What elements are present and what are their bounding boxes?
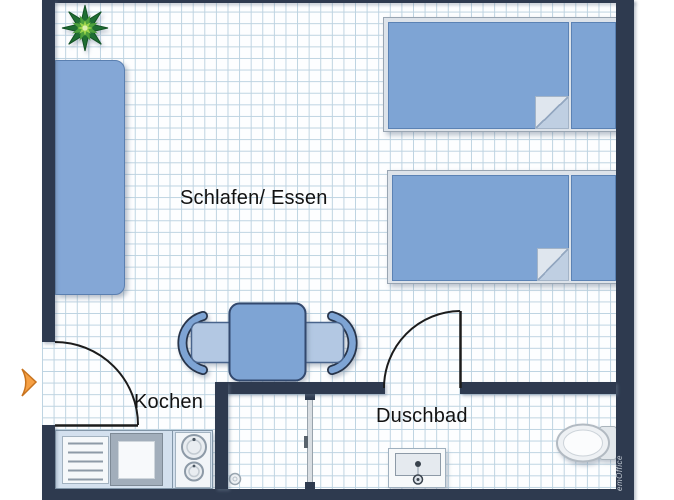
wall-left-upper xyxy=(42,0,55,342)
wall-bottom xyxy=(42,489,634,500)
label-room-bath: Duschbad xyxy=(376,405,468,428)
bed-1-blanket-fold xyxy=(535,96,569,129)
bed-1 xyxy=(383,17,618,132)
sofa xyxy=(55,60,125,295)
wall-right xyxy=(616,0,634,500)
bed-1-pillow xyxy=(571,22,616,129)
wall-bathroom-top-left xyxy=(215,382,385,394)
wall-bathroom-top-right xyxy=(460,382,616,394)
label-room-kitchen: Kochen xyxy=(134,391,203,414)
floor-plan: Schlafen/ Essen Kochen Duschbad emOffice xyxy=(0,0,674,500)
entry-arrow-icon xyxy=(22,369,36,396)
label-room-main: Schlafen/ Essen xyxy=(180,187,328,210)
bed-2-blanket-fold xyxy=(537,248,569,281)
bed-2-pillow xyxy=(571,175,616,281)
bed-2 xyxy=(387,170,618,284)
wall-top xyxy=(42,0,634,3)
watermark: emOffice xyxy=(615,448,633,498)
wall-kitchen-shower-divider xyxy=(215,382,228,489)
